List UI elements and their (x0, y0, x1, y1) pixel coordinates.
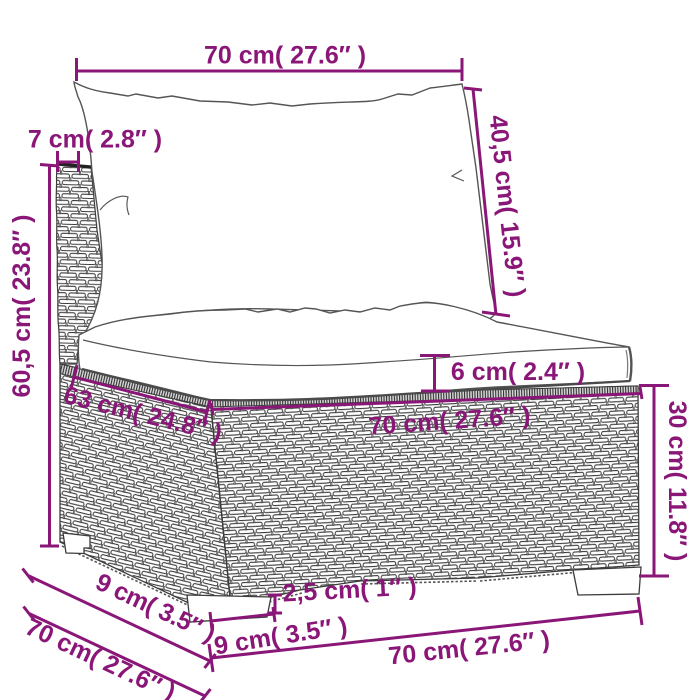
svg-text:6 cm( 2.4″ ): 6 cm( 2.4″ ) (451, 358, 585, 386)
svg-text:30 cm( 11.8″ ): 30 cm( 11.8″ ) (663, 401, 691, 562)
svg-text:60,5 cm( 23.8″ ): 60,5 cm( 23.8″ ) (8, 215, 36, 398)
svg-text:7 cm( 2.8″ ): 7 cm( 2.8″ ) (28, 126, 162, 154)
svg-text:70 cm( 27.6″ ): 70 cm( 27.6″ ) (204, 42, 366, 70)
